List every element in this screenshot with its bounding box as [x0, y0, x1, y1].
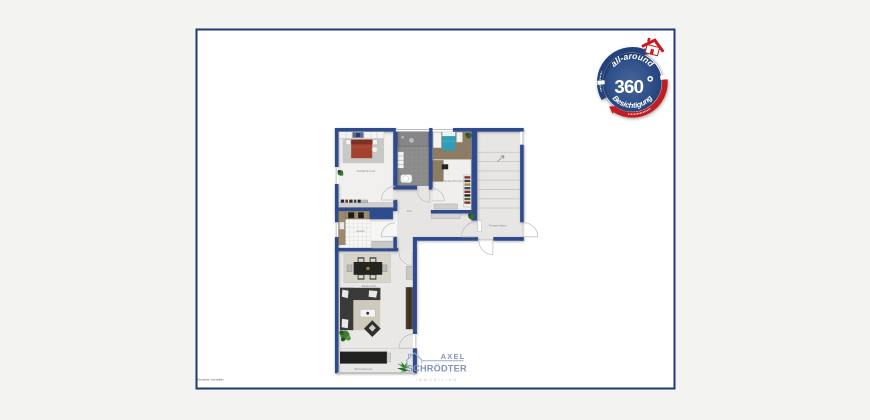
- svg-text:SCHRÖDTER: SCHRÖDTER: [407, 363, 467, 373]
- svg-text:Kinderzimmer: Kinderzimmer: [444, 179, 463, 183]
- svg-text:Wohnzimmer: Wohnzimmer: [354, 367, 372, 371]
- svg-text:Grundriss: Immobilien: Grundriss: Immobilien: [198, 377, 225, 381]
- svg-text:Schlafzimmer: Schlafzimmer: [357, 169, 376, 173]
- svg-text:AXEL: AXEL: [441, 352, 466, 361]
- svg-text:IMMOBILIEN: IMMOBILIEN: [416, 378, 458, 382]
- svg-text:Flur: Flur: [407, 209, 412, 213]
- svg-text:Treppenhaus: Treppenhaus: [488, 223, 507, 227]
- svg-text:Essbereich: Essbereich: [362, 284, 377, 288]
- svg-text:360: 360: [614, 76, 643, 97]
- svg-text:Küche: Küche: [356, 229, 365, 233]
